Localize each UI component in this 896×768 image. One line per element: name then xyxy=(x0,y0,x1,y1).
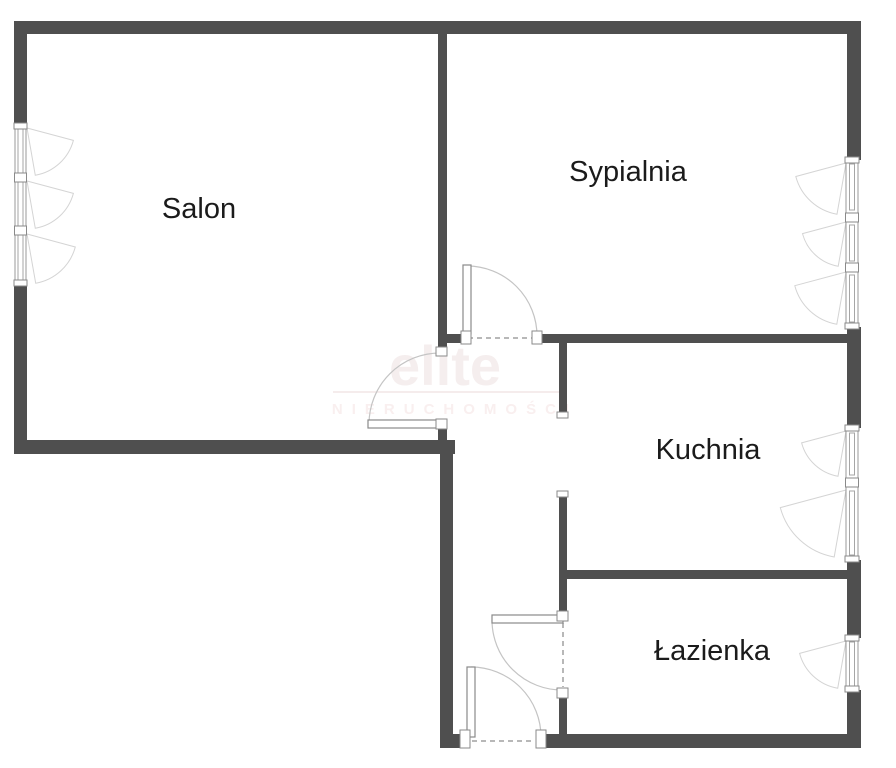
window-sash xyxy=(850,275,855,322)
door-leaf xyxy=(492,615,563,623)
window-casement-fan xyxy=(27,128,73,175)
door-swing-arc xyxy=(467,266,537,336)
floorplan-canvas: elite NIERUCHOMOŚCI xyxy=(0,0,896,768)
opening-end-cap xyxy=(557,491,568,497)
wall-top xyxy=(14,21,861,34)
watermark: elite NIERUCHOMOŚCI xyxy=(332,334,578,418)
window-sash xyxy=(850,433,855,475)
window-casement-fan xyxy=(802,431,846,476)
door-jamb xyxy=(460,730,470,748)
window-end-cap xyxy=(845,425,859,431)
window-casement-fan xyxy=(27,181,73,228)
window-casement-fan xyxy=(27,234,75,283)
wall-salon-bottom xyxy=(14,440,455,454)
watermark-subtitle-text: NIERUCHOMOŚCI xyxy=(332,400,578,418)
window-end-cap xyxy=(14,123,27,129)
wall-left-upper xyxy=(14,21,27,125)
wall-right-2 xyxy=(847,327,861,428)
lazienka-door xyxy=(492,611,568,698)
window-end-cap xyxy=(845,556,859,562)
wall-corridor-right-upper xyxy=(559,343,567,417)
door-jamb xyxy=(532,331,542,344)
window-mullion xyxy=(846,213,859,222)
window-casement-fan xyxy=(780,490,846,557)
window-casement-fan xyxy=(795,272,846,324)
wall-salon-sypialnia-divider xyxy=(438,34,447,352)
wall-bottom-right-seg xyxy=(540,734,861,748)
door-jamb xyxy=(436,419,447,429)
door-swing-arc xyxy=(492,620,563,690)
wall-left-lower xyxy=(14,285,27,454)
door-jamb xyxy=(557,611,568,621)
wall-corridor-left xyxy=(440,440,453,748)
floorplan-svg: elite NIERUCHOMOŚCI xyxy=(0,0,896,768)
room-label-sypialnia: Sypialnia xyxy=(569,156,688,188)
wall-sypialnia-bottom-right-seg xyxy=(537,334,847,343)
door-jamb xyxy=(536,730,546,748)
window-end-cap xyxy=(14,280,27,286)
window-casement-fan xyxy=(800,641,846,688)
window-sash xyxy=(18,182,23,226)
door-jamb xyxy=(557,688,568,698)
window-mullion xyxy=(846,263,859,272)
window-end-cap xyxy=(845,635,859,641)
door-leaf xyxy=(368,420,440,428)
wall-right-1 xyxy=(847,21,861,160)
window-mullion xyxy=(15,173,27,182)
room-label-kuchnia: Kuchnia xyxy=(656,434,762,466)
window-sash xyxy=(18,235,23,280)
window-mullion xyxy=(15,226,27,235)
window-casement-fan xyxy=(803,222,847,266)
window-end-cap xyxy=(845,686,859,692)
window-sash xyxy=(18,129,23,173)
sypialnia-door xyxy=(461,265,542,344)
window-sash xyxy=(850,491,855,555)
window-mullion xyxy=(846,478,859,487)
salon-window-left-wall xyxy=(14,123,75,286)
window-sash xyxy=(850,164,855,210)
window-sash xyxy=(850,225,855,261)
kuchnia-opening xyxy=(557,412,568,497)
window-end-cap xyxy=(845,157,859,163)
kuchnia-window-right-wall xyxy=(780,425,859,562)
room-label-lazienka: Łazienka xyxy=(654,635,771,667)
door-jamb xyxy=(461,331,471,344)
window-end-cap xyxy=(845,323,859,329)
window-casement-fan xyxy=(796,163,846,214)
sypialnia-window-right-wall xyxy=(795,157,859,329)
door-swing-arc xyxy=(471,667,541,737)
door-jamb xyxy=(436,347,447,356)
wall-kuchnia-lazienka xyxy=(565,570,847,579)
door-leaf xyxy=(463,265,471,334)
door-leaf xyxy=(467,667,475,737)
room-label-salon: Salon xyxy=(162,193,236,225)
opening-end-cap xyxy=(557,412,568,418)
lazienka-window-right-wall xyxy=(800,635,859,692)
entrance-door xyxy=(460,667,546,748)
wall-corridor-right-middle xyxy=(559,492,567,620)
wall-right-3 xyxy=(847,560,861,638)
window-sash xyxy=(850,642,855,686)
